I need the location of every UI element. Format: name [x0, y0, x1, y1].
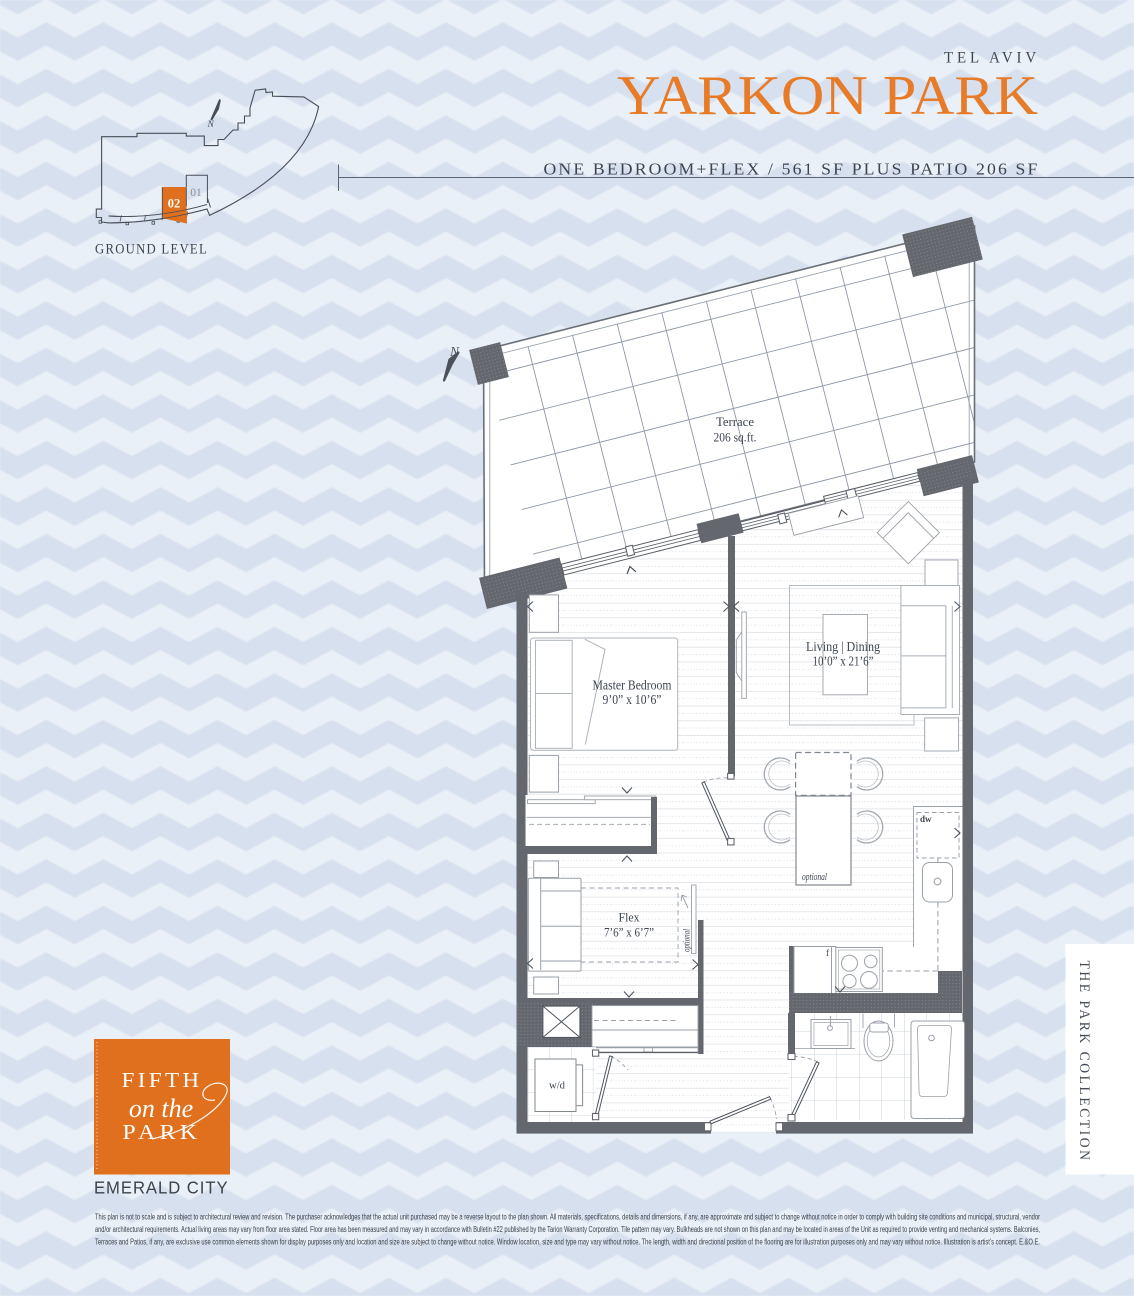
- svg-text:w/d: w/d: [549, 1081, 565, 1092]
- svg-text:N: N: [207, 120, 215, 130]
- svg-text:This plan is not to scale and: This plan is not to scale and is subject…: [95, 1213, 1040, 1222]
- svg-text:10’0” x 21’6”: 10’0” x 21’6”: [813, 654, 874, 669]
- svg-text:9’0” x 10’6”: 9’0” x 10’6”: [603, 692, 662, 707]
- svg-text:Flex: Flex: [619, 910, 640, 925]
- svg-text:7’6” x 6’7”: 7’6” x 6’7”: [604, 925, 654, 940]
- svg-text:FIFTH: FIFTH: [122, 1068, 203, 1092]
- svg-text:GROUND LEVEL: GROUND LEVEL: [95, 242, 208, 258]
- svg-text:Master Bedroom: Master Bedroom: [593, 678, 672, 693]
- svg-text:YARKON PARK: YARKON PARK: [617, 65, 1038, 127]
- svg-text:Living | Dining: Living | Dining: [806, 639, 880, 654]
- svg-text:optional: optional: [802, 872, 827, 883]
- svg-text:02: 02: [168, 197, 181, 211]
- svg-text:EMERALD CITY: EMERALD CITY: [94, 1178, 229, 1198]
- svg-text:on the: on the: [129, 1094, 193, 1123]
- svg-text:TEL AVIV: TEL AVIV: [944, 50, 1040, 67]
- svg-text:Terraces and Patios, if any, a: Terraces and Patios, if any, are exclusi…: [95, 1238, 1040, 1247]
- svg-text:206 sq.ft.: 206 sq.ft.: [714, 430, 757, 445]
- svg-text:PARK: PARK: [123, 1120, 202, 1144]
- svg-text:dw: dw: [920, 814, 932, 824]
- svg-text:N: N: [449, 344, 460, 359]
- svg-text:and/or architectural requireme: and/or architectural requirements. Actua…: [95, 1225, 1040, 1234]
- svg-text:f: f: [826, 948, 829, 958]
- svg-text:Terrace: Terrace: [716, 414, 754, 429]
- svg-text:THE PARK COLLECTION: THE PARK COLLECTION: [1076, 961, 1092, 1163]
- svg-text:01: 01: [190, 187, 202, 199]
- svg-text:optional: optional: [682, 929, 692, 952]
- svg-text:ONE BEDROOM+FLEX / 561 SF PLUS: ONE BEDROOM+FLEX / 561 SF PLUS PATIO 206…: [544, 160, 1040, 179]
